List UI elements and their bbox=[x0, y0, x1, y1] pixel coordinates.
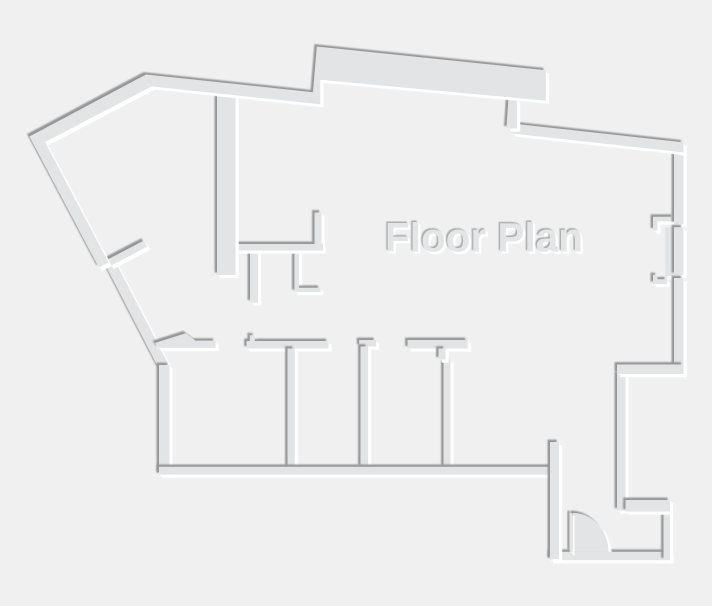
svg-text:Floor Plan: Floor Plan bbox=[385, 215, 583, 261]
